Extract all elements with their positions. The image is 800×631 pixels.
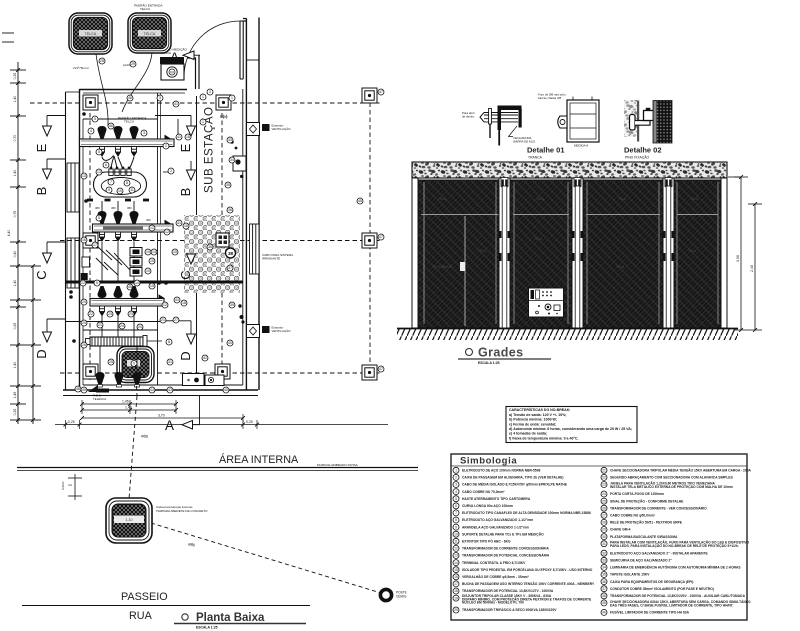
svg-text:45: 45 bbox=[224, 388, 228, 392]
svg-text:1,40: 1,40 bbox=[13, 362, 17, 369]
svg-text:11: 11 bbox=[454, 540, 458, 544]
svg-text:ÁREA INTERNA: ÁREA INTERNA bbox=[219, 453, 299, 466]
svg-text:12: 12 bbox=[163, 303, 167, 307]
svg-text:7: 7 bbox=[110, 180, 112, 184]
svg-text:DAS TRÊS FASES, C/ BASE FUSÍVE: DAS TRÊS FASES, C/ BASE FUSÍVEL LIMITADO… bbox=[610, 602, 733, 607]
svg-text:ISOLADOR TIPO PEDESTAL EM PORC: ISOLADOR TIPO PEDESTAL EM PORCELANA OU E… bbox=[462, 568, 593, 572]
svg-text:22: 22 bbox=[89, 312, 93, 316]
svg-text:9: 9 bbox=[455, 525, 457, 529]
svg-text:ELETRODUTO AÇO GALVANIZADO 1-1: ELETRODUTO AÇO GALVANIZADO 1-1/2"mm bbox=[462, 518, 533, 522]
svg-text:15: 15 bbox=[150, 284, 154, 288]
svg-text:a) Tensão de saída: 120 V +/-: a) Tensão de saída: 120 V +/- 10%; bbox=[509, 413, 566, 417]
svg-text:ESCALA 1:25: ESCALA 1:25 bbox=[478, 361, 500, 365]
svg-text:8: 8 bbox=[455, 518, 457, 522]
svg-text:37: 37 bbox=[228, 266, 232, 270]
svg-text:PORTA CORTA-FOGO DE 1200mm: PORTA CORTA-FOGO DE 1200mm bbox=[610, 492, 664, 496]
svg-text:5: 5 bbox=[98, 216, 100, 220]
svg-text:1,10: 1,10 bbox=[126, 518, 133, 522]
svg-text:2: 2 bbox=[165, 144, 167, 148]
svg-text:SINAL DE PROTEÇÃO - CONFORME D: SINAL DE PROTEÇÃO - CONFORME DETALHE bbox=[610, 498, 684, 503]
svg-text:TERMINAL CONTRÁTIL A FRIO 8,7/: TERMINAL CONTRÁTIL A FRIO 8,7/15KV bbox=[462, 560, 526, 565]
svg-text:5: 5 bbox=[455, 497, 457, 501]
svg-text:CURVA LONGA 90o AÇO 100mm: CURVA LONGA 90o AÇO 100mm bbox=[462, 504, 513, 508]
svg-text:17: 17 bbox=[93, 243, 97, 247]
svg-text:18: 18 bbox=[182, 301, 186, 305]
svg-text:Simbologia: Simbologia bbox=[460, 456, 517, 467]
svg-text:TELA: TELA bbox=[534, 237, 543, 241]
svg-text:TRANSFORMADOR DE POTENCIAL 13,: TRANSFORMADOR DE POTENCIAL 13,8KV/127V -… bbox=[462, 589, 554, 593]
svg-text:B: B bbox=[34, 187, 49, 196]
svg-text:380: 380 bbox=[127, 206, 132, 210]
svg-text:0,40: 0,40 bbox=[13, 251, 17, 258]
svg-text:8ϕϕ: 8ϕϕ bbox=[220, 114, 228, 119]
svg-text:24: 24 bbox=[602, 492, 606, 496]
svg-text:31: 31 bbox=[602, 542, 606, 546]
svg-text:ELETRODUTO TIPO CANAFLEX DE AL: ELETRODUTO TIPO CANAFLEX DE ALTA DENSIDA… bbox=[462, 511, 591, 515]
svg-text:TRANSFORMADOR DE POTENCIAL CON: TRANSFORMADOR DE POTENCIAL CONCESSIONÁRI… bbox=[462, 553, 550, 558]
svg-text:380: 380 bbox=[111, 206, 116, 210]
svg-text:M: M bbox=[170, 70, 173, 75]
svg-text:41: 41 bbox=[177, 221, 181, 225]
svg-text:BUCHA DE PASSAGEM USO INTERNO: BUCHA DE PASSAGEM USO INTERNO TENSÃO 15K… bbox=[462, 581, 595, 586]
svg-text:19: 19 bbox=[146, 250, 150, 254]
svg-text:9: 9 bbox=[108, 188, 110, 192]
svg-text:25: 25 bbox=[109, 360, 113, 364]
svg-text:28: 28 bbox=[100, 59, 104, 63]
svg-text:29: 29 bbox=[131, 62, 135, 66]
svg-text:26: 26 bbox=[602, 506, 606, 510]
svg-text:CHAVE GM-4: CHAVE GM-4 bbox=[610, 528, 631, 532]
svg-text:6: 6 bbox=[105, 163, 107, 167]
svg-text:TELA: TELA bbox=[616, 265, 625, 269]
svg-text:21: 21 bbox=[602, 469, 606, 473]
svg-text:5: 5 bbox=[96, 281, 98, 285]
svg-text:1: 1 bbox=[231, 96, 233, 100]
svg-text:18: 18 bbox=[186, 135, 190, 139]
svg-text:TELA: TELA bbox=[618, 197, 627, 201]
svg-text:27: 27 bbox=[602, 514, 606, 518]
svg-text:1,40: 1,40 bbox=[125, 406, 132, 410]
svg-text:4: 4 bbox=[90, 129, 92, 133]
svg-text:24: 24 bbox=[120, 324, 124, 328]
svg-text:Grades: Grades bbox=[478, 346, 523, 360]
svg-text:36: 36 bbox=[208, 245, 212, 249]
svg-text:1,40: 1,40 bbox=[13, 280, 17, 287]
svg-text:e) 4 tomadas de saída;: e) 4 tomadas de saída; bbox=[509, 432, 547, 436]
svg-text:47: 47 bbox=[379, 90, 383, 94]
svg-text:34: 34 bbox=[230, 158, 234, 162]
svg-text:13: 13 bbox=[454, 554, 458, 558]
svg-text:46: 46 bbox=[128, 96, 132, 100]
svg-text:28: 28 bbox=[602, 521, 606, 525]
svg-text:490: 490 bbox=[146, 218, 151, 222]
svg-text:27: 27 bbox=[174, 318, 178, 322]
svg-text:23: 23 bbox=[108, 312, 112, 316]
svg-text:C: C bbox=[178, 270, 193, 279]
svg-text:38: 38 bbox=[228, 251, 234, 256]
svg-text:TELCA: TELCA bbox=[124, 120, 135, 124]
svg-text:Detalhe 01: Detalhe 01 bbox=[527, 146, 565, 155]
svg-text:barras chatas 3/8: barras chatas 3/8 bbox=[538, 96, 562, 100]
svg-text:45: 45 bbox=[358, 199, 362, 203]
svg-text:6: 6 bbox=[455, 504, 457, 508]
svg-text:CABO DE MÉDIA ISOLADO 8,7/15KV: CABO DE MÉDIA ISOLADO 8,7/15KV/50² φ50mm… bbox=[462, 482, 568, 487]
svg-text:25: 25 bbox=[602, 499, 606, 503]
svg-text:18: 18 bbox=[454, 589, 458, 593]
svg-text:31: 31 bbox=[168, 360, 172, 364]
svg-text:0,70: 0,70 bbox=[13, 135, 17, 142]
svg-text:TELCA: TELCA bbox=[85, 32, 97, 36]
svg-text:42: 42 bbox=[203, 356, 207, 360]
svg-text:24: 24 bbox=[138, 325, 142, 329]
svg-text:INSTALAR TELA METÁLICO EXTERNA: INSTALAR TELA METÁLICO EXTERNA DE PROTEÇ… bbox=[610, 484, 733, 489]
svg-text:TRANSFORMADOR DE POTENCIAL 13,: TRANSFORMADOR DE POTENCIAL 13,8KV/220V -… bbox=[610, 594, 746, 598]
svg-text:TELA: TELA bbox=[690, 197, 699, 201]
svg-text:4,40: 4,40 bbox=[7, 230, 11, 237]
svg-text:43: 43 bbox=[168, 388, 172, 392]
svg-text:c) Forma de onda: senoidal;: c) Forma de onda: senoidal; bbox=[509, 422, 556, 426]
svg-text:14: 14 bbox=[152, 250, 156, 254]
svg-text:1,40: 1,40 bbox=[13, 170, 17, 177]
svg-text:PLATAFORMA BASCULANTE GIRASSOM: PLATAFORMA BASCULANTE GIRASSOMA bbox=[610, 535, 678, 539]
svg-text:1,40: 1,40 bbox=[13, 96, 17, 103]
svg-text:SEMICURVA DE AÇO GALVANIZADO 2: SEMICURVA DE AÇO GALVANIZADO 2" bbox=[610, 559, 672, 563]
svg-text:CEMIG: CEMIG bbox=[396, 595, 407, 599]
svg-text:22: 22 bbox=[602, 476, 606, 480]
svg-text:5: 5 bbox=[98, 150, 100, 154]
svg-text:CARACTERÍSTICAS DO NO-BREAK:: CARACTERÍSTICAS DO NO-BREAK: bbox=[509, 407, 570, 412]
svg-text:11: 11 bbox=[130, 188, 134, 192]
svg-text:0,25: 0,25 bbox=[13, 323, 17, 330]
svg-text:4: 4 bbox=[455, 490, 457, 494]
svg-text:1: 1 bbox=[202, 95, 204, 99]
svg-text:35: 35 bbox=[602, 573, 606, 577]
svg-text:49: 49 bbox=[82, 388, 86, 392]
svg-text:TAPETE ISOLANTE 15KV: TAPETE ISOLANTE 15KV bbox=[610, 573, 650, 577]
svg-text:37: 37 bbox=[602, 587, 606, 591]
svg-text:36: 36 bbox=[602, 580, 606, 584]
svg-text:22: 22 bbox=[81, 281, 85, 285]
svg-text:20: 20 bbox=[454, 608, 458, 612]
svg-text:12: 12 bbox=[150, 226, 154, 230]
svg-text:IRRADIANTE: IRRADIANTE bbox=[262, 257, 280, 261]
svg-text:44: 44 bbox=[150, 388, 154, 392]
svg-text:HASTE ATERRAMENTO TIPO CARTOME: HASTE ATERRAMENTO TIPO CARTOMERA bbox=[462, 497, 531, 501]
svg-text:TRANSFORMADOR DE CORRENTE CONC: TRANSFORMADOR DE CORRENTE CONCESSIONÁRIA bbox=[462, 546, 549, 551]
svg-text:CAIXA PARA EQUIPAMENTOS DE SEG: CAIXA PARA EQUIPAMENTOS DE SEGURANÇA (EP… bbox=[610, 580, 693, 584]
svg-text:16: 16 bbox=[454, 575, 458, 579]
svg-text:36: 36 bbox=[228, 208, 232, 212]
svg-text:TELA MALHA: TELA MALHA bbox=[432, 265, 453, 269]
svg-text:1: 1 bbox=[202, 120, 204, 124]
svg-text:12: 12 bbox=[165, 230, 169, 234]
svg-text:ARANDELA AÇO GALVANIZADO 1-1/2: ARANDELA AÇO GALVANIZADO 1-1/2"mm bbox=[462, 525, 529, 529]
svg-text:13: 13 bbox=[97, 170, 101, 174]
svg-text:NÚCLEO EM 50/60Hz - MODELO PL: NÚCLEO EM 50/60Hz - MODELO PL 700 bbox=[462, 600, 524, 605]
svg-text:TELA: TELA bbox=[478, 249, 487, 253]
svg-text:MURO/ALAMBRADO DIVISA: MURO/ALAMBRADO DIVISA bbox=[317, 463, 359, 467]
svg-text:2: 2 bbox=[209, 90, 211, 94]
svg-text:TELA: TELA bbox=[438, 197, 447, 201]
svg-text:BARRA DE AÇO: BARRA DE AÇO bbox=[514, 139, 536, 143]
svg-text:d) Autonomia mínima: 6 horas,: d) Autonomia mínima: 6 horas, consideran… bbox=[509, 427, 632, 431]
svg-text:TELA: TELA bbox=[688, 249, 697, 253]
svg-text:f) Faixa de temperatura mínima: f) Faixa de temperatura mínima: 0 a 40°C… bbox=[509, 436, 578, 440]
svg-text:41: 41 bbox=[174, 102, 178, 106]
svg-text:5: 5 bbox=[94, 117, 96, 121]
svg-text:8: 8 bbox=[168, 340, 170, 344]
svg-text:MEDIDA 8: MEDIDA 8 bbox=[574, 144, 588, 148]
svg-text:LUMINÁRIA DE EMERGÊNCIA AUTÔNO: LUMINÁRIA DE EMERGÊNCIA AUTÔNOMA COM AUT… bbox=[610, 565, 741, 570]
svg-text:CONDUTOR COBRE 35mm² ISOLAMENT: CONDUTOR COBRE 35mm² ISOLAMENTO (POR FAS… bbox=[610, 587, 714, 591]
svg-text:12: 12 bbox=[454, 547, 458, 551]
svg-text:13: 13 bbox=[82, 174, 86, 178]
svg-text:45: 45 bbox=[128, 285, 132, 289]
svg-text:41: 41 bbox=[177, 135, 181, 139]
svg-text:33: 33 bbox=[602, 559, 606, 563]
svg-text:D: D bbox=[178, 351, 193, 360]
svg-text:18: 18 bbox=[184, 224, 188, 228]
svg-text:3,70: 3,70 bbox=[158, 414, 165, 418]
svg-text:48: 48 bbox=[76, 387, 80, 391]
svg-text:2x4º75mm²: 2x4º75mm² bbox=[73, 66, 89, 70]
svg-text:PARA LEDS, PARA INSTALAÇÃO DO: PARA LEDS, PARA INSTALAÇÃO DO NO-BREAK D… bbox=[610, 543, 739, 548]
svg-text:TELENCA: TELENCA bbox=[93, 397, 106, 401]
svg-text:E: E bbox=[34, 143, 49, 152]
svg-text:RELÉ DE PROTEÇÃO 50/51 - PEXTR: RELÉ DE PROTEÇÃO 50/51 - PEXTRON URPE bbox=[610, 520, 683, 525]
svg-text:33: 33 bbox=[228, 138, 232, 142]
svg-text:min: min bbox=[68, 483, 73, 487]
svg-text:14: 14 bbox=[454, 561, 458, 565]
svg-text:de dentro: de dentro bbox=[462, 114, 475, 118]
svg-text:VERGALHÃO DE COBRE φ9,5mm - 35: VERGALHÃO DE COBRE φ9,5mm - 35mm² bbox=[462, 574, 530, 579]
svg-text:ELETRODUTO AÇO GALVANIZADO 2": ELETRODUTO AÇO GALVANIZADO 2" - INSTALAR… bbox=[610, 551, 709, 555]
svg-text:3: 3 bbox=[159, 96, 161, 100]
svg-text:PASSEIO: PASSEIO bbox=[121, 591, 168, 603]
svg-text:VENTILAÇÃO: VENTILAÇÃO bbox=[272, 126, 292, 131]
svg-text:40: 40 bbox=[602, 611, 606, 615]
svg-text:D: D bbox=[34, 349, 49, 358]
svg-text:15: 15 bbox=[173, 250, 177, 254]
svg-text:2: 2 bbox=[170, 169, 172, 173]
svg-text:380: 380 bbox=[95, 206, 100, 210]
svg-text:0,25: 0,25 bbox=[246, 420, 253, 424]
svg-text:32: 32 bbox=[602, 551, 606, 555]
svg-text:PINO FIXAÇÃO: PINO FIXAÇÃO bbox=[625, 155, 649, 160]
svg-text:23: 23 bbox=[602, 483, 606, 487]
svg-text:TELCA: TELCA bbox=[144, 32, 156, 36]
svg-text:0,60m: 0,60m bbox=[61, 481, 65, 490]
svg-text:14: 14 bbox=[135, 281, 139, 285]
svg-text:8: 8 bbox=[126, 181, 128, 185]
svg-text:16: 16 bbox=[82, 238, 86, 242]
svg-text:ELETRODUTO DE AÇO 100mm NORMA: ELETRODUTO DE AÇO 100mm NORMA NBR-5598 bbox=[462, 469, 540, 473]
svg-text:2,40: 2,40 bbox=[750, 265, 754, 272]
svg-text:2: 2 bbox=[455, 476, 457, 480]
svg-text:E: E bbox=[178, 143, 193, 152]
svg-text:47: 47 bbox=[379, 367, 383, 371]
svg-text:0,75: 0,75 bbox=[13, 211, 17, 218]
svg-text:39: 39 bbox=[230, 303, 234, 307]
svg-text:SUPORTE DETALHE PARA TCs E TPs: SUPORTE DETALHE PARA TCs E TPs EM MEDIÇÃ… bbox=[462, 531, 544, 536]
svg-text:CABO COBRE NU φ50,0mm²: CABO COBRE NU φ50,0mm² bbox=[610, 514, 656, 518]
svg-text:20: 20 bbox=[82, 300, 86, 304]
svg-text:TRANCA: TRANCA bbox=[528, 156, 543, 160]
svg-text:7: 7 bbox=[455, 511, 457, 515]
svg-text:Detalhe 02: Detalhe 02 bbox=[624, 146, 662, 155]
svg-text:10: 10 bbox=[454, 532, 458, 536]
svg-text:34: 34 bbox=[602, 566, 606, 570]
svg-text:19: 19 bbox=[146, 269, 150, 273]
svg-text:0,25: 0,25 bbox=[13, 409, 17, 416]
svg-text:C: C bbox=[34, 270, 49, 279]
svg-text:TAMPADA ABERETE DE CONCRETO: TAMPADA ABERETE DE CONCRETO bbox=[156, 509, 208, 513]
svg-text:1,45: 1,45 bbox=[13, 392, 17, 399]
svg-text:29: 29 bbox=[602, 528, 606, 532]
svg-text:23: 23 bbox=[129, 312, 133, 316]
svg-text:TELA: TELA bbox=[536, 197, 545, 201]
svg-text:CAIXA DE PASSAGEM EM ALVENARIA: CAIXA DE PASSAGEM EM ALVENARIA, TIPO Zb … bbox=[462, 476, 563, 480]
svg-text:0,25: 0,25 bbox=[68, 420, 75, 424]
svg-text:46: 46 bbox=[109, 124, 113, 128]
svg-text:3: 3 bbox=[143, 131, 145, 135]
svg-text:21: 21 bbox=[98, 323, 102, 327]
svg-text:SEGUNDO ABRAÇAMENTO COM SECCIO: SEGUNDO ABRAÇAMENTO COM SECCIONADORA COM… bbox=[610, 476, 734, 480]
svg-text:Planta Baixa: Planta Baixa bbox=[196, 612, 265, 624]
svg-text:TRANSFORMADOR DE CORRENTE - VE: TRANSFORMADOR DE CORRENTE - VER CONCESSI… bbox=[610, 505, 707, 510]
svg-text:A: A bbox=[165, 418, 174, 433]
svg-text:CHAVE SECCIONADORA TRIPOLAR MÉ: CHAVE SECCIONADORA TRIPOLAR MÉDIA TENSÃO… bbox=[610, 468, 752, 473]
svg-text:20: 20 bbox=[82, 321, 86, 325]
svg-text:FUSÍVEL LIMITADOR DE CORRENTE: FUSÍVEL LIMITADOR DE CORRENTE TIPO HH 63… bbox=[610, 610, 690, 615]
svg-text:15: 15 bbox=[454, 568, 458, 572]
svg-text:47: 47 bbox=[379, 235, 383, 239]
svg-text:RUA: RUA bbox=[129, 610, 153, 622]
svg-text:0,25: 0,25 bbox=[13, 73, 17, 80]
svg-text:VENTILAÇÃO: VENTILAÇÃO bbox=[272, 328, 292, 333]
svg-text:35: 35 bbox=[226, 183, 230, 187]
svg-text:TELCA: TELCA bbox=[140, 7, 151, 11]
svg-text:9: 9 bbox=[133, 362, 135, 366]
svg-text:3: 3 bbox=[455, 483, 457, 487]
svg-text:CABO COBRE NU 70,0mm²: CABO COBRE NU 70,0mm² bbox=[462, 490, 505, 494]
svg-text:3,00: 3,00 bbox=[736, 255, 740, 262]
svg-text:1: 1 bbox=[455, 469, 457, 473]
svg-text:ESCALA 1:25: ESCALA 1:25 bbox=[196, 626, 218, 630]
svg-text:17: 17 bbox=[454, 582, 458, 586]
svg-text:38: 38 bbox=[602, 594, 606, 598]
svg-text:B: B bbox=[178, 188, 193, 197]
svg-text:21: 21 bbox=[161, 318, 165, 322]
svg-text:19: 19 bbox=[454, 596, 458, 600]
svg-text:41: 41 bbox=[175, 298, 179, 302]
svg-text:26: 26 bbox=[82, 343, 86, 347]
svg-text:EXTINTOR TIPO PÓ ABC - 6KG: EXTINTOR TIPO PÓ ABC - 6KG bbox=[462, 539, 511, 544]
svg-text:39: 39 bbox=[602, 601, 606, 605]
svg-text:19: 19 bbox=[150, 259, 154, 263]
svg-text:1,45: 1,45 bbox=[122, 400, 129, 404]
svg-text:b) Potência mínima: 1000 W;: b) Potência mínima: 1000 W; bbox=[509, 418, 557, 422]
svg-text:10: 10 bbox=[118, 189, 122, 193]
svg-text:30: 30 bbox=[602, 535, 606, 539]
svg-text:40: 40 bbox=[228, 341, 232, 345]
svg-text:TRANSFORMADOR TRIFÁSICO A SECO: TRANSFORMADOR TRIFÁSICO A SECO 300KVA 13… bbox=[462, 607, 557, 612]
